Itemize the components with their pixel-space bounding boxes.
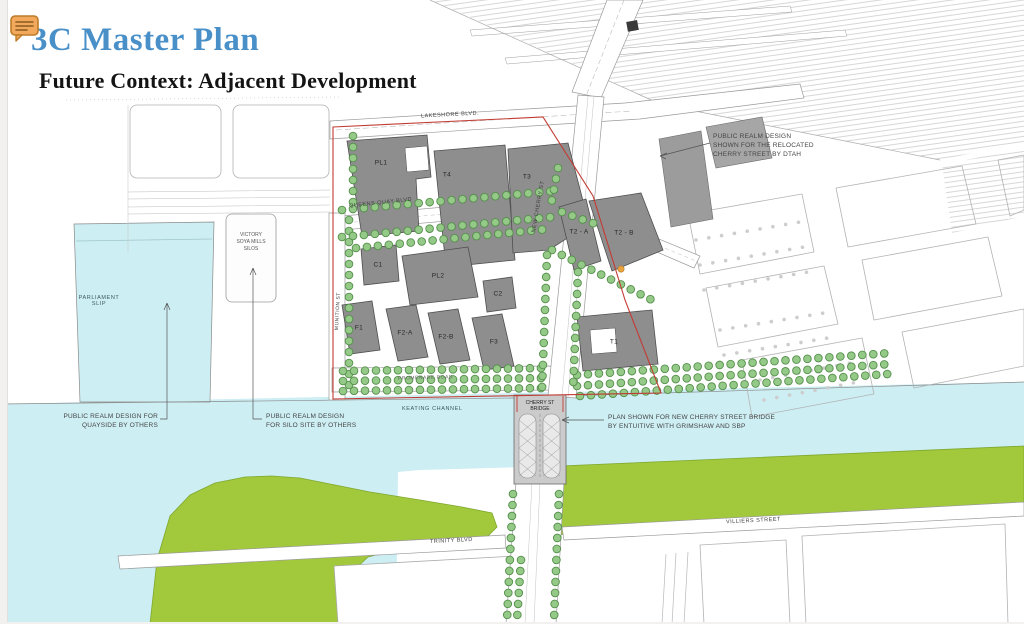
slide-left-margin (0, 0, 8, 624)
building-label-pl1: PL1 (375, 160, 387, 167)
silos-outline (226, 214, 276, 302)
building-label-pl2: PL2 (432, 273, 444, 280)
small-building-north (626, 20, 639, 32)
building-label-t1: T1 (610, 339, 618, 346)
building-label-c1: C1 (374, 262, 383, 269)
presentation-slide: 3C Master Plan Future Context: Adjacent … (0, 0, 1024, 624)
page-subtitle: Future Context: Adjacent Development (39, 68, 417, 94)
water-label-keating-channel: KEATING CHANNEL (402, 406, 463, 412)
page-title: 3C Master Plan (31, 22, 259, 59)
building-label-t2b: T2 - B (614, 230, 634, 237)
landmark-label-bridge: CHERRY ST BRIDGE (518, 400, 562, 412)
landmark-label-silos: VICTORY SOYA MILLS SILOS (228, 232, 274, 252)
building-label-c2: C2 (494, 291, 503, 298)
annotation-silo-site: PUBLIC REALM DESIGN FOR SILO SITE BY OTH… (266, 413, 376, 431)
building-label-f1: F1 (355, 325, 363, 332)
annotation-quayside: PUBLIC REALM DESIGN FOR QUAYSIDE BY OTHE… (62, 413, 158, 431)
annotation-bridge-credit: PLAN SHOWN FOR NEW CHERRY STREET BRIDGE … (608, 414, 788, 432)
building-label-f2b: F2-B (438, 334, 453, 341)
building-label-t2a: T2 - A (569, 229, 588, 236)
comment-annotation-icon[interactable] (10, 15, 40, 43)
building-label-f3: F3 (490, 339, 498, 346)
building-t4 (434, 145, 515, 267)
building-label-t3: T3 (523, 174, 531, 181)
highlight-dot (618, 266, 624, 272)
building-label-t4: T4 (443, 172, 451, 179)
building-label-f2a: F2-A (397, 330, 412, 337)
water-label-parliament-slip: PARLIAMENT SLIP (78, 295, 120, 307)
annotation-cherry-dtah: PUBLIC REALM DESIGN SHOWN FOR THE RELOCA… (713, 133, 833, 159)
parliament-slip-water (74, 222, 214, 402)
